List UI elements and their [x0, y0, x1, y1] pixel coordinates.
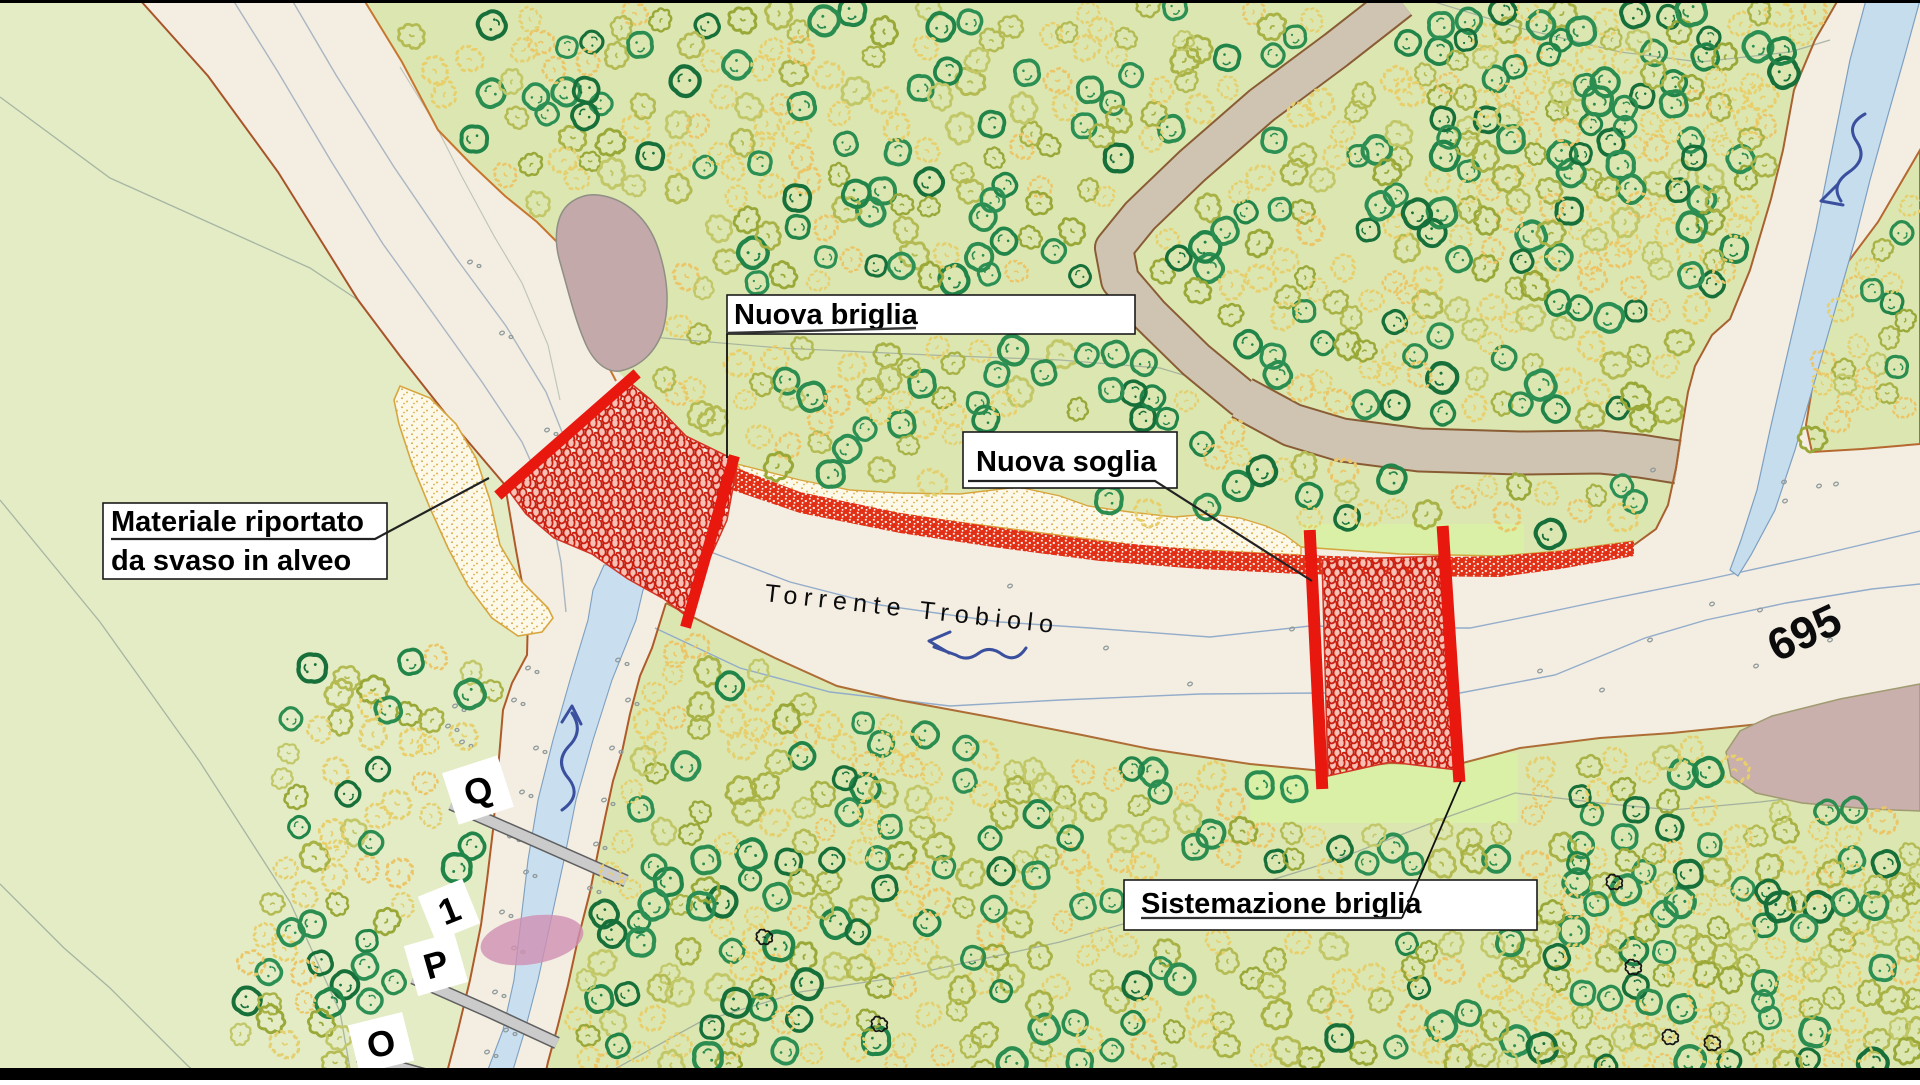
svg-text:Nuova briglia: Nuova briglia — [734, 299, 919, 331]
svg-text:Nuova soglia: Nuova soglia — [976, 446, 1157, 478]
svg-text:da svaso in alveo: da svaso in alveo — [111, 545, 351, 577]
svg-text:Materiale riportato: Materiale riportato — [111, 506, 364, 538]
svg-text:Sistemazione briglia: Sistemazione briglia — [1141, 888, 1422, 920]
